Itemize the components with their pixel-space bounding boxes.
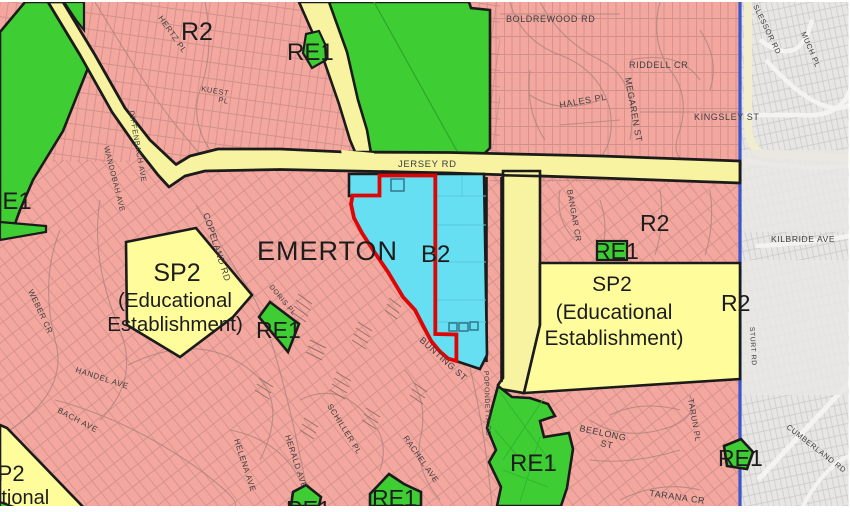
- svg-text:RE1: RE1: [0, 188, 32, 215]
- svg-text:(Educational: (Educational: [118, 289, 232, 312]
- svg-text:Establishment): Establishment): [545, 327, 684, 350]
- svg-text:RE1: RE1: [594, 238, 639, 264]
- svg-text:RE1: RE1: [718, 445, 763, 471]
- svg-text:SP2: SP2: [153, 259, 200, 287]
- svg-text:EMERTON: EMERTON: [257, 236, 398, 266]
- svg-text:BOLDREWOOD RD: BOLDREWOOD RD: [506, 14, 595, 24]
- svg-text:B2: B2: [421, 241, 450, 268]
- svg-text:R2: R2: [721, 290, 750, 316]
- svg-text:RE1: RE1: [510, 450, 557, 477]
- svg-text:RE1: RE1: [287, 39, 334, 66]
- svg-text:R2: R2: [181, 18, 213, 46]
- svg-text:(Educational: (Educational: [556, 301, 673, 324]
- svg-text:KILBRIDE AVE: KILBRIDE AVE: [771, 234, 835, 244]
- svg-text:PL: PL: [218, 95, 230, 106]
- svg-text:(Educational: (Educational: [0, 487, 49, 509]
- svg-text:JERSEY RD: JERSEY RD: [398, 159, 457, 170]
- svg-text:KINGSLEY ST: KINGSLEY ST: [694, 112, 759, 122]
- svg-text:SP2: SP2: [592, 273, 632, 296]
- svg-text:SP2: SP2: [0, 461, 25, 486]
- svg-text:RE1: RE1: [256, 317, 301, 343]
- svg-text:R2: R2: [640, 210, 669, 236]
- svg-text:Establishment): Establishment): [107, 313, 243, 336]
- svg-text:RIDDELL CR: RIDDELL CR: [629, 60, 688, 70]
